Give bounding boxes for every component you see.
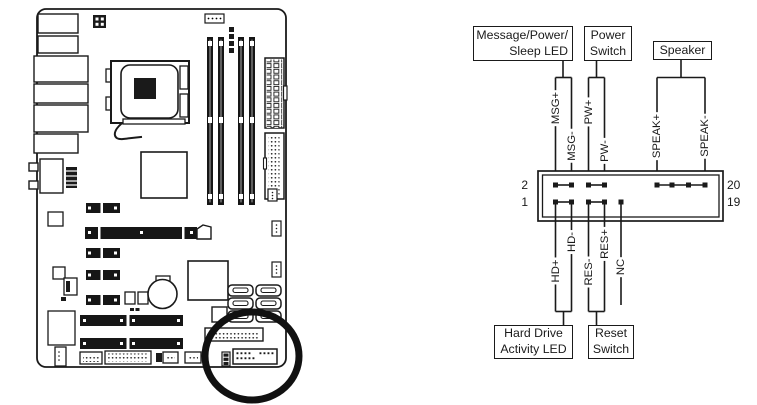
speaker-label: Speaker [654,43,711,59]
cpu-fan-header [205,14,224,23]
signal-label-res-minus: RES- [583,257,595,288]
motherboard-diagram [29,9,299,400]
northbridge-chip [141,152,187,198]
hard-drive-activity-led-box: Hard Drive Activity LED [494,325,573,359]
signal-label-msg-plus: MSG+ [550,90,562,126]
power-switch-label-line1: Power [585,28,631,44]
front-panel-wiring [538,60,723,325]
msg-led-label-line2: Sleep LED [474,44,568,60]
signal-label-pw-minus: PW- [599,138,611,164]
signal-label-pw-plus: PW+ [583,98,595,127]
msg-led-label-line1: Message/Power/ [474,28,568,44]
pin-number-19: 19 [727,196,745,208]
speaker-box: Speaker [653,41,712,60]
pin-number-2: 2 [510,179,528,191]
cpu-die [134,78,156,99]
reset-switch-label-line2: Switch [589,342,633,358]
pin-number-20: 20 [727,179,745,191]
diagram-graphics [0,0,757,405]
signal-label-hd-minus: HD- [566,230,578,254]
southbridge-chip [188,261,228,300]
signal-label-hd-plus: HD+ [550,258,562,285]
power-switch-box: Power Switch [584,26,632,61]
pin-number-1: 1 [510,196,528,208]
signal-label-speak-plus: SPEAK+ [651,112,663,160]
reset-switch-label-line1: Reset [589,326,633,342]
reset-switch-box: Reset Switch [588,325,634,359]
signal-label-speak-minus: SPEAK- [699,113,711,158]
front-panel-header [222,349,277,366]
signal-label-nc: NC [615,257,627,277]
slot-latch [197,225,211,239]
message-power-sleep-led-box: Message/Power/ Sleep LED [473,26,573,61]
atx-power-connector [265,58,287,128]
atx12v-connector [93,15,106,28]
signal-label-msg-minus: MSG- [566,129,578,163]
hdd-led-label-line2: Activity LED [495,342,572,358]
hdd-led-label-line1: Hard Drive [495,326,572,342]
power-switch-label-line2: Switch [585,44,631,60]
pin-header-inner [543,175,720,217]
pcie-x16-slot [85,225,211,239]
signal-label-res-plus: RES+ [599,227,611,261]
front-audio-header [80,352,102,364]
audio-codec-chip [66,167,77,188]
manual-page: Message/Power/ Sleep LED Power Switch Sp… [0,0,757,405]
